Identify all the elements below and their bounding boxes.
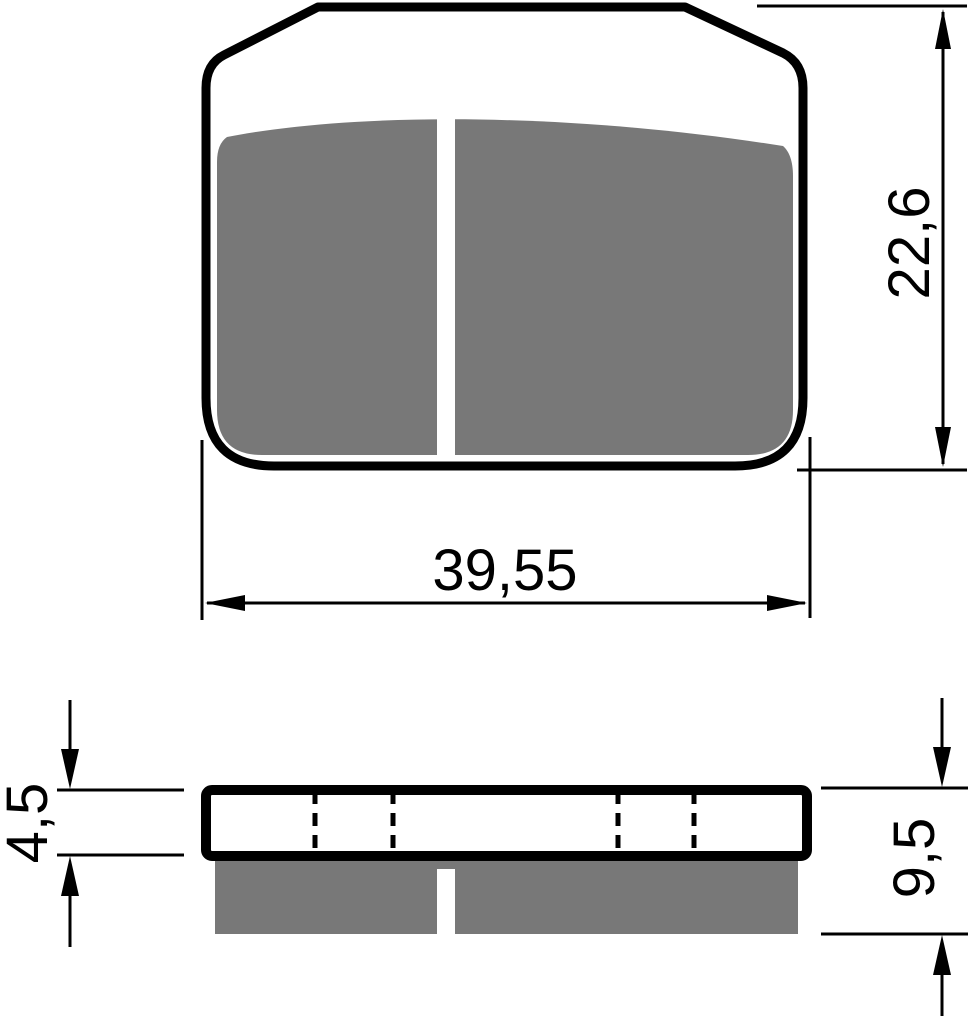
total-thickness-label: 9,5	[882, 818, 947, 899]
plate-arrowhead-up	[61, 856, 79, 896]
height-dim-label: 22,6	[877, 187, 942, 300]
backing-plate-side-view	[206, 790, 807, 856]
dimension-total-thickness: 9,5	[821, 698, 968, 1016]
total-arrowhead-up	[933, 935, 951, 975]
width-arrowhead-left	[205, 595, 245, 611]
side-view	[206, 790, 807, 934]
width-arrowhead-right	[767, 595, 807, 611]
brake-pad-technical-drawing: 22,6 39,55	[0, 0, 972, 1024]
total-arrowhead-down	[933, 747, 951, 787]
height-arrowhead-down	[935, 427, 951, 467]
friction-material-side-view	[215, 861, 798, 934]
plate-arrowhead-down	[61, 749, 79, 789]
top-view	[206, 7, 803, 466]
friction-slot-top-view	[437, 103, 455, 458]
friction-slot-side-view	[437, 869, 455, 934]
plate-thickness-label: 4,5	[0, 783, 60, 864]
width-dim-label: 39,55	[432, 538, 577, 603]
dimension-plate-thickness: 4,5	[0, 700, 184, 947]
drawing-canvas: 22,6 39,55	[0, 0, 972, 1024]
friction-material-top-view	[217, 119, 793, 455]
height-arrowhead-up	[935, 9, 951, 49]
